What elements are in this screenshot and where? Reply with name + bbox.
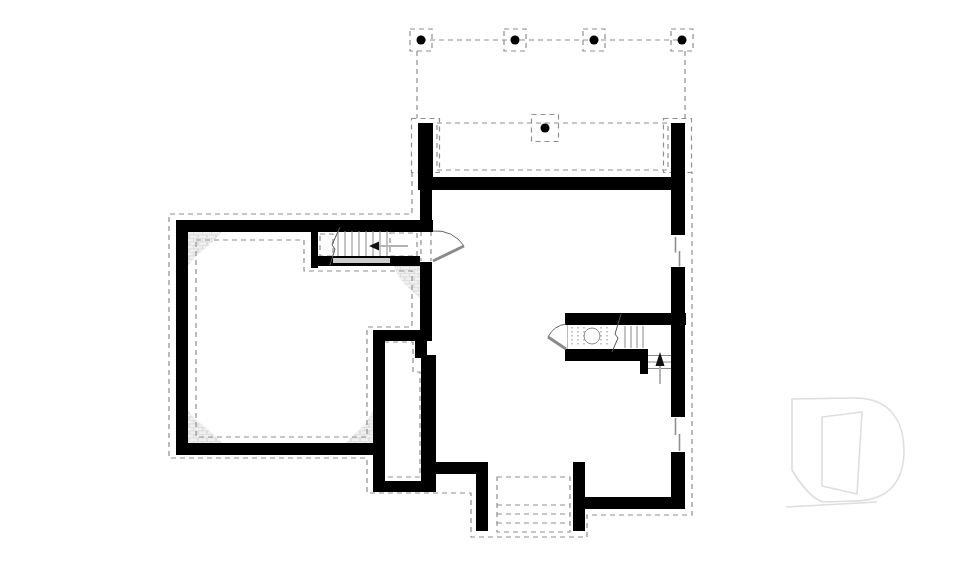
window-upper-slider [676, 237, 680, 267]
stair-direction-arrow-head [656, 352, 665, 366]
post-dot [417, 36, 426, 45]
garage-stair-end-stub [311, 232, 318, 268]
main-stair-bottom-wall [565, 349, 648, 361]
coldroom-right-wall-upper [415, 341, 427, 358]
garage-door-leaf [433, 246, 464, 261]
logo-watermark-d [786, 398, 904, 507]
top-wall [418, 177, 685, 190]
main-stair-corner-stub [640, 349, 648, 374]
garage-door-swing-arc [433, 231, 464, 246]
floor-plan-page [0, 0, 960, 569]
logo-inner-counter [822, 412, 862, 494]
porch-right-wall [573, 462, 585, 531]
floor-plan-drawing [0, 0, 960, 569]
stair-door-swing-arc [548, 324, 566, 337]
main-left-wall-mid [420, 262, 432, 341]
post-dot [511, 36, 520, 45]
pad-bottom-left [188, 410, 222, 443]
garage-door-frame-dash [421, 231, 431, 261]
garage-stair-upper-landing [320, 234, 333, 256]
support-column-circle [584, 328, 600, 344]
doors [433, 231, 568, 349]
bottom-left-wall [428, 462, 488, 474]
deck-edge-overhead [437, 123, 668, 170]
coldroom-inner-footing [384, 342, 420, 477]
stair-treads [338, 231, 387, 256]
stair-direction-arrow-head [369, 242, 379, 251]
right-wall-mid [671, 267, 685, 417]
deck-post-dots [417, 36, 687, 133]
coldroom-left-wall [373, 330, 385, 492]
post-dot [678, 36, 687, 45]
pier-left [418, 123, 433, 178]
pad-stair-corner [394, 266, 420, 298]
coldroom-right-wall-lower [421, 355, 436, 492]
center-post-dot [541, 124, 550, 133]
foundation-walls [176, 123, 686, 531]
stair-stringer [333, 258, 390, 263]
pad-bottom-right [346, 410, 373, 443]
stair-treads [625, 326, 643, 348]
bottom-right-wall [573, 497, 685, 509]
post-dot [590, 36, 599, 45]
right-wall-upper [671, 177, 685, 235]
logo-underline [786, 502, 877, 507]
window-lower-slider [676, 418, 680, 451]
stair-door-leaf [548, 337, 566, 349]
garage-left-wall [176, 220, 188, 455]
pier-right [671, 123, 685, 178]
garage-top-wall [176, 220, 433, 232]
garage-bottom-wall [176, 443, 385, 455]
pad-top-left [188, 232, 222, 266]
main-stair-top-wall [565, 313, 686, 325]
garage-stair-landing [390, 233, 417, 256]
